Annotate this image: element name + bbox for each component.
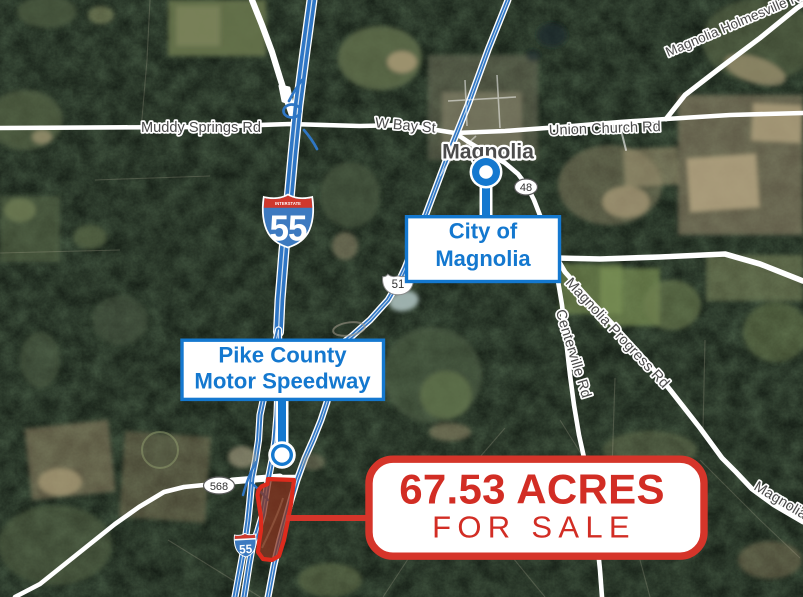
svg-text:FOR SALE: FOR SALE <box>432 510 636 545</box>
svg-text:City of: City of <box>449 219 518 244</box>
svg-text:55: 55 <box>270 209 307 248</box>
svg-text:55: 55 <box>239 542 253 557</box>
svg-text:Magnolia: Magnolia <box>435 246 531 271</box>
svg-text:INTERSTATE: INTERSTATE <box>275 201 301 206</box>
svg-text:568: 568 <box>210 481 228 493</box>
svg-text:Motor Speedway: Motor Speedway <box>194 369 371 394</box>
svg-text:Pike County: Pike County <box>218 343 347 368</box>
svg-text:48: 48 <box>520 182 532 194</box>
svg-text:51: 51 <box>392 279 405 291</box>
svg-text:Muddy Springs Rd: Muddy Springs Rd <box>141 120 261 136</box>
svg-text:67.53 ACRES: 67.53 ACRES <box>399 466 665 513</box>
